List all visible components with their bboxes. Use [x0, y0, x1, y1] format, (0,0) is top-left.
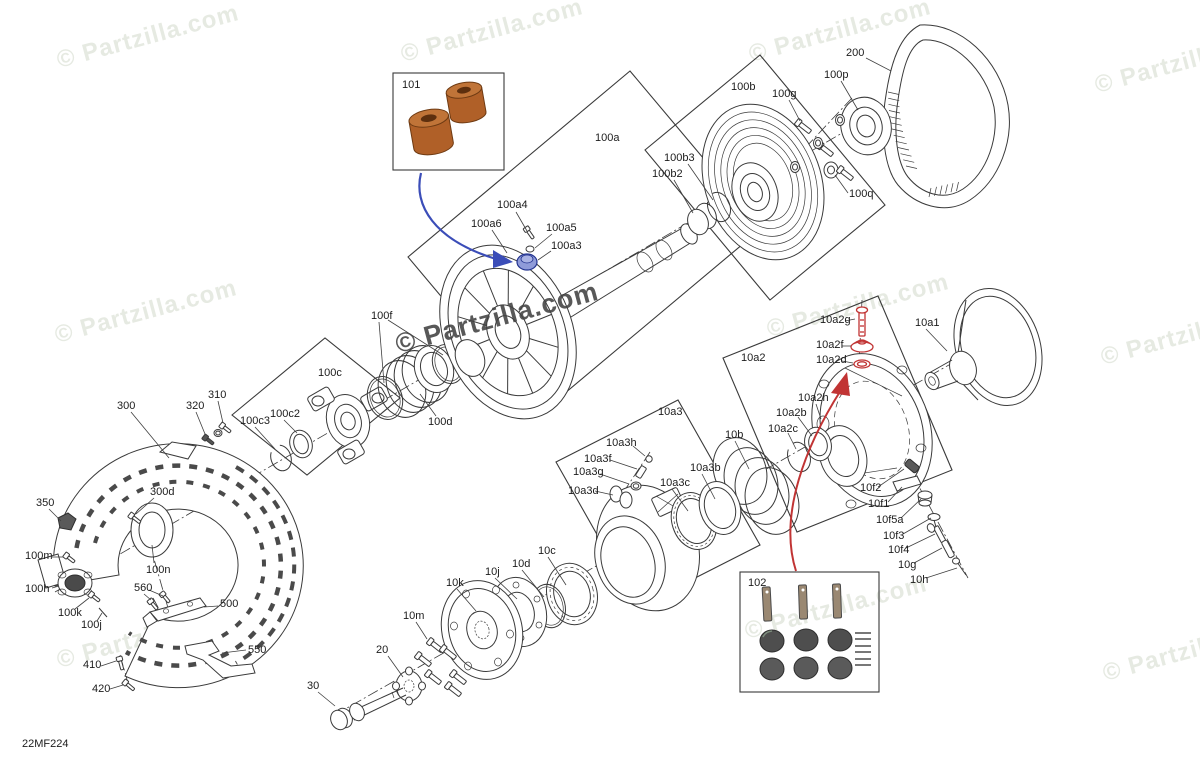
- part-label-10a2b: 10a2b: [776, 408, 807, 419]
- part-label-420: 420: [92, 684, 110, 695]
- part-label-100f: 100f: [371, 311, 392, 322]
- part-label-10a2: 10a2: [741, 353, 765, 364]
- part-label-10c: 10c: [538, 546, 556, 557]
- part-label-100n: 100n: [146, 565, 170, 576]
- part-label-100h: 100h: [25, 584, 49, 595]
- part-label-100b2: 100b2: [652, 169, 683, 180]
- part-label-550: 550: [248, 645, 266, 656]
- part-label-10a2h: 10a2h: [798, 393, 829, 404]
- part-label-100g: 100g: [772, 89, 796, 100]
- parts-diagram-page: © Partzilla.com© Partzilla.com© Partzill…: [0, 0, 1200, 777]
- part-label-10a3f: 10a3f: [584, 454, 612, 465]
- part-label-100k: 100k: [58, 608, 82, 619]
- part-label-300: 300: [117, 401, 135, 412]
- part-label-410: 410: [83, 660, 101, 671]
- part-label-10a3g: 10a3g: [573, 467, 604, 478]
- part-label-10a3d: 10a3d: [568, 486, 599, 497]
- part-label-10a2g: 10a2g: [820, 315, 851, 326]
- part-label-10j: 10j: [485, 567, 500, 578]
- part-label-10f5a: 10f5a: [876, 515, 904, 526]
- part-label-10m: 10m: [403, 611, 424, 622]
- label-layer: 22MF224 101100a100a4100a6100a5100a3100b1…: [0, 0, 1200, 777]
- part-label-560: 560: [134, 583, 152, 594]
- part-label-10a1: 10a1: [915, 318, 939, 329]
- part-label-10a3h: 10a3h: [606, 438, 637, 449]
- part-label-100p: 100p: [824, 70, 848, 81]
- part-label-100a4: 100a4: [497, 200, 528, 211]
- part-label-200: 200: [846, 48, 864, 59]
- part-label-30: 30: [307, 681, 319, 692]
- part-label-500: 500: [220, 599, 238, 610]
- part-label-10a3b: 10a3b: [690, 463, 721, 474]
- part-label-10f2: 10f2: [860, 483, 881, 494]
- sheet-code: 22MF224: [22, 738, 68, 750]
- part-label-350: 350: [36, 498, 54, 509]
- part-label-10k: 10k: [446, 578, 464, 589]
- part-label-20: 20: [376, 645, 388, 656]
- part-label-100a3: 100a3: [551, 241, 582, 252]
- part-label-100b3: 100b3: [664, 153, 695, 164]
- part-label-10b: 10b: [725, 430, 743, 441]
- part-label-102: 102: [748, 578, 766, 589]
- part-label-100m: 100m: [25, 551, 53, 562]
- part-label-10d: 10d: [512, 559, 530, 570]
- part-label-320: 320: [186, 401, 204, 412]
- part-label-10h: 10h: [910, 575, 928, 586]
- part-label-100d: 100d: [428, 417, 452, 428]
- part-label-10f1: 10f1: [868, 499, 889, 510]
- part-label-10a3c: 10a3c: [660, 478, 690, 489]
- part-label-100q: 100q: [849, 189, 873, 200]
- part-label-310: 310: [208, 390, 226, 401]
- part-label-10a2d: 10a2d: [816, 355, 847, 366]
- part-label-100a6: 100a6: [471, 219, 502, 230]
- part-label-10f3: 10f3: [883, 531, 904, 542]
- part-label-10a3: 10a3: [658, 407, 682, 418]
- part-label-10f4: 10f4: [888, 545, 909, 556]
- part-label-100c3: 100c3: [240, 416, 270, 427]
- part-label-10a2f: 10a2f: [816, 340, 844, 351]
- part-label-100a: 100a: [595, 133, 619, 144]
- part-label-10a2c: 10a2c: [768, 424, 798, 435]
- part-label-100b: 100b: [731, 82, 755, 93]
- part-label-100j: 100j: [81, 620, 102, 631]
- part-label-10g: 10g: [898, 560, 916, 571]
- part-label-100c: 100c: [318, 368, 342, 379]
- part-label-101: 101: [402, 80, 420, 91]
- part-label-300d: 300d: [150, 487, 174, 498]
- part-label-100a5: 100a5: [546, 223, 577, 234]
- part-label-100c2: 100c2: [270, 409, 300, 420]
